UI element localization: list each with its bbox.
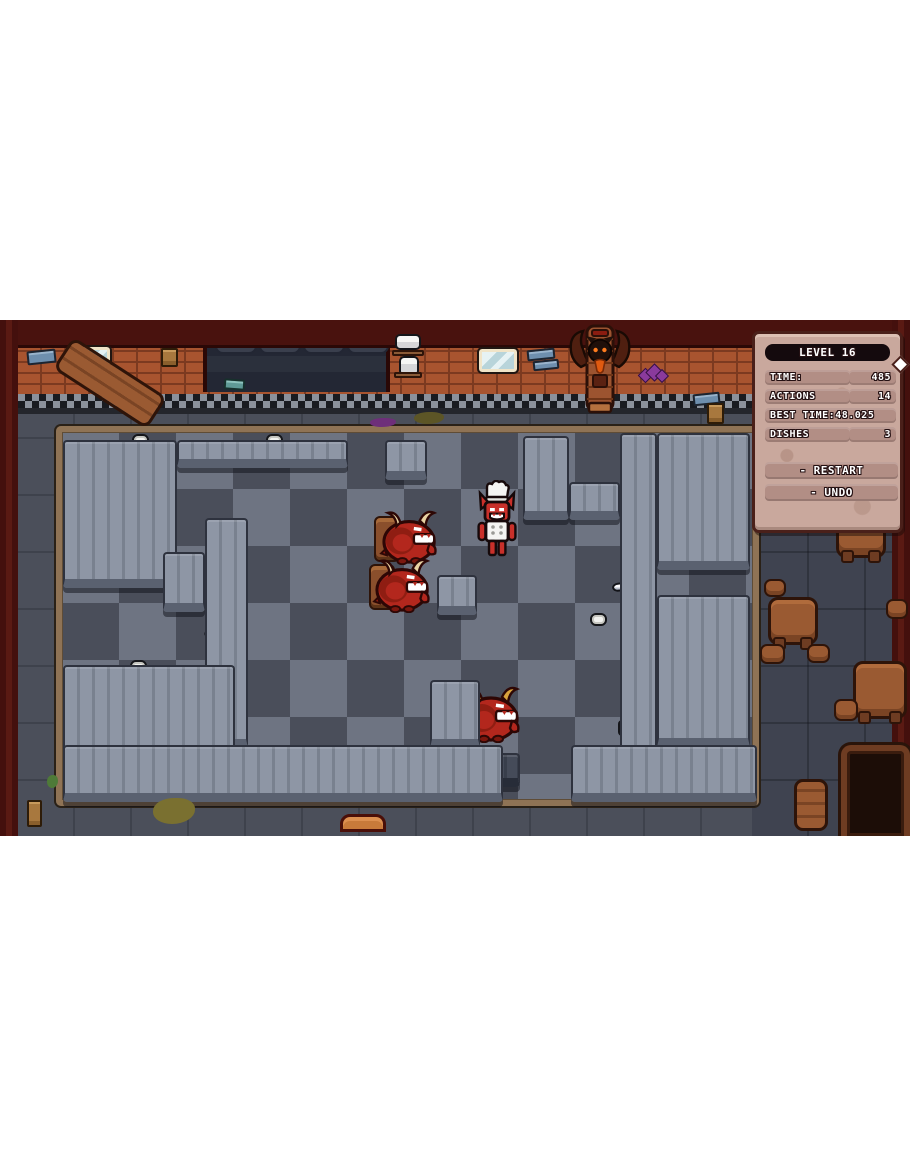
demon-customer (372, 557, 436, 613)
purple-gems (638, 364, 666, 382)
kitchen-counter (657, 433, 750, 570)
shelf-pot (395, 334, 421, 350)
stat-row: BEST TIME:48.025 (765, 408, 896, 423)
kitchen-counter (523, 436, 569, 520)
kitchen-counter (569, 482, 620, 520)
stat-row: ACTIONS14 (765, 389, 896, 404)
kitchen-counter (571, 745, 757, 802)
stat-label: ACTIONS (765, 389, 850, 404)
kitchen-counter (385, 440, 427, 480)
kitchen-counter (177, 440, 348, 468)
kitchen-counter (63, 440, 177, 588)
stool (834, 699, 858, 721)
kitchen-counter (437, 575, 477, 615)
paper-stack (26, 349, 56, 366)
hud-buttons: - RESTART- UNDO (765, 462, 898, 506)
stool (886, 599, 908, 619)
table-leg (868, 550, 881, 563)
paper-stack (533, 359, 560, 372)
paper-stack (224, 378, 246, 390)
floor-stain (370, 418, 396, 427)
kitchen-counter (657, 595, 750, 747)
wall-shelf (394, 372, 422, 378)
stat-value: 14 (849, 389, 896, 404)
stat-label: BEST TIME: (770, 410, 835, 421)
undo-button[interactable]: - UNDO (765, 484, 898, 501)
stool (764, 579, 786, 597)
floor-stain (414, 412, 444, 424)
table-leg (889, 711, 902, 724)
window (479, 349, 517, 372)
stat-label: DISHES (765, 427, 850, 442)
dining-table (768, 597, 818, 645)
floor-stain (153, 798, 195, 824)
game-viewport: LEVEL 16 TIME:485ACTIONS14BEST TIME:48.0… (0, 320, 910, 836)
stat-row: TIME:485 (765, 370, 896, 385)
stat-value: 485 (849, 370, 896, 385)
plate (590, 613, 607, 626)
restart-button[interactable]: - RESTART (765, 462, 898, 479)
screenshot-stage: { "hud": { "level_label": "LEVEL 16", "r… (0, 0, 910, 1155)
hud-stats: TIME:485ACTIONS14BEST TIME:48.025DISHES3 (765, 370, 896, 446)
stool (760, 644, 785, 664)
bench (53, 337, 168, 430)
table-leg (841, 550, 854, 563)
dining-table (853, 661, 907, 719)
kitchen-counter (620, 433, 657, 785)
kitchen-counter (430, 680, 480, 748)
table-leg (858, 711, 871, 724)
kitchen-counter (163, 552, 205, 612)
hud-panel: LEVEL 16 TIME:485ACTIONS14BEST TIME:48.0… (752, 331, 903, 533)
paper-stack (161, 348, 178, 367)
stat-value: 3 (849, 427, 896, 442)
level-title: LEVEL 16 (765, 344, 890, 361)
floor-stain (47, 775, 58, 788)
stat-label: TIME: (765, 370, 850, 385)
demon-statue (567, 323, 633, 421)
paper-stack (707, 403, 724, 424)
kitchen-counter (63, 745, 503, 802)
dark-doorway (841, 745, 910, 836)
paper-stack (27, 800, 42, 827)
stool (807, 644, 830, 663)
stat-row: DISHES3 (765, 427, 896, 442)
chef-player (471, 480, 523, 558)
bench (794, 779, 828, 831)
bench (340, 814, 386, 832)
stat-value: 48.025 (835, 410, 874, 421)
